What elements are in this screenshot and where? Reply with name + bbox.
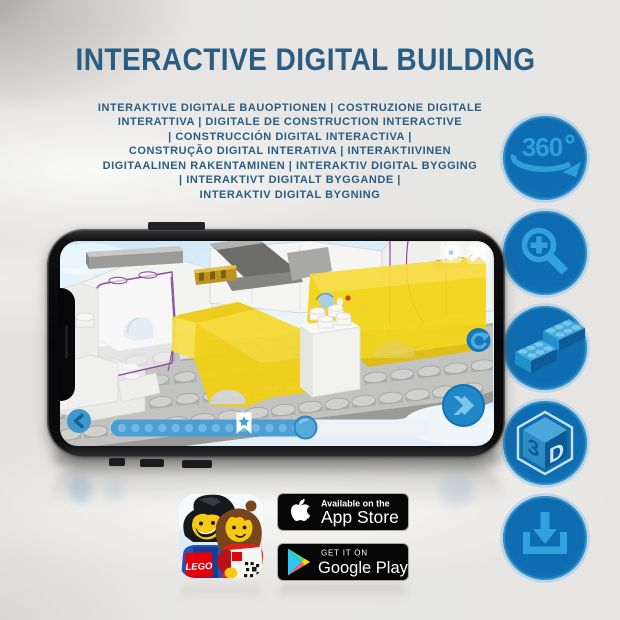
svg-text:App Store: App Store: [321, 507, 399, 527]
svg-text:LEGO: LEGO: [185, 561, 213, 573]
svg-text:360: 360: [522, 132, 563, 162]
svg-text:GET IT ON: GET IT ON: [321, 549, 368, 558]
svg-text:Google Play: Google Play: [318, 559, 409, 577]
